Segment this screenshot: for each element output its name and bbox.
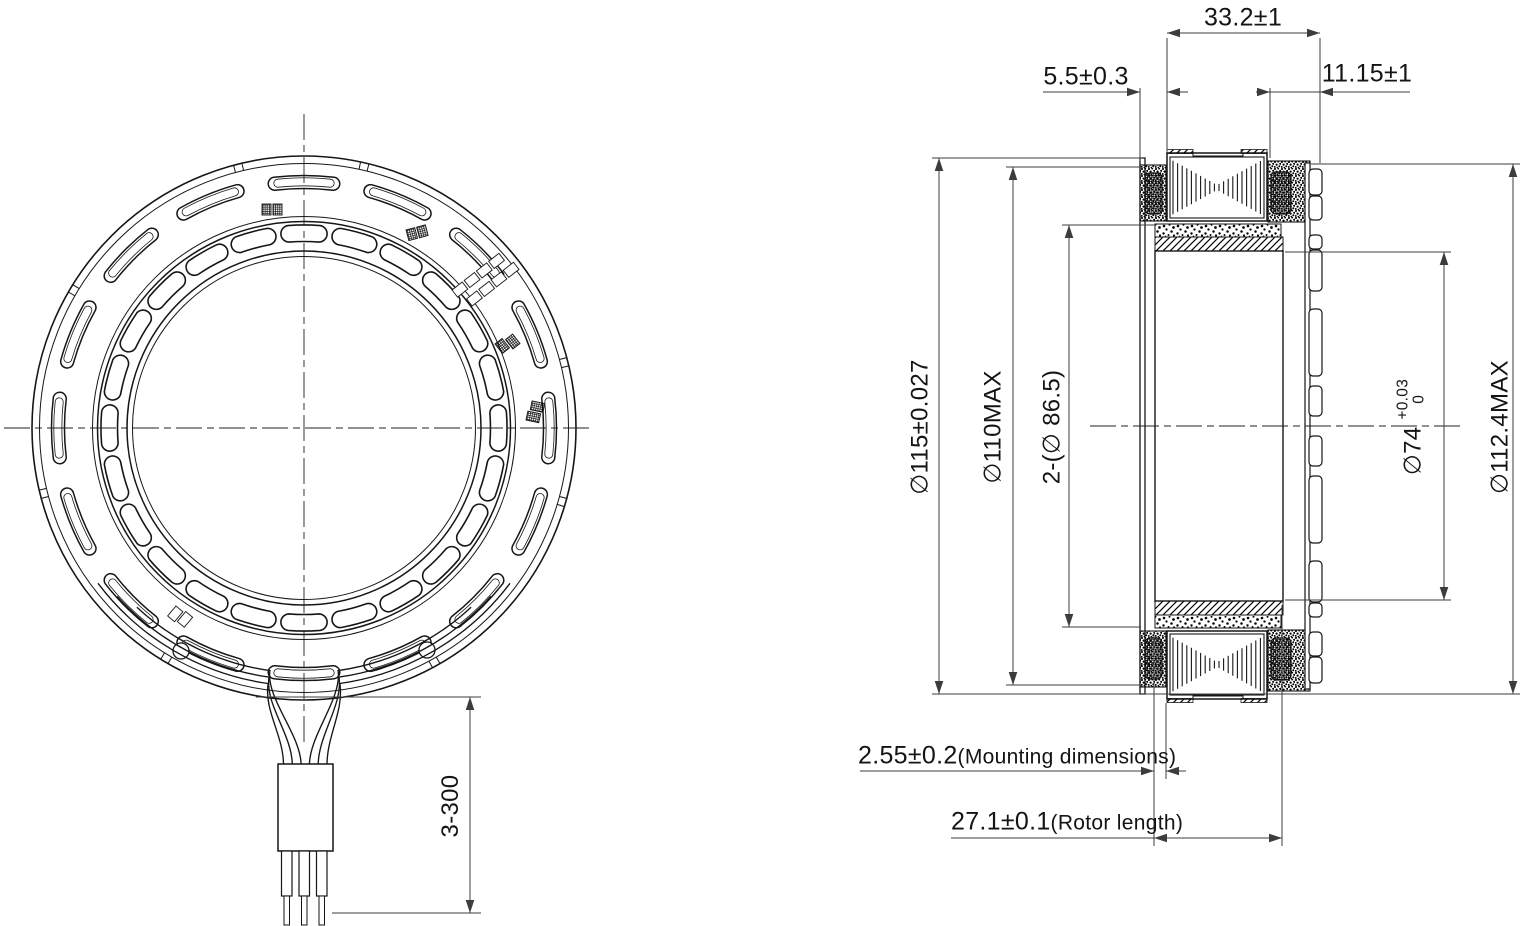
dim-bore-tol-lower: 0	[1412, 395, 1428, 404]
dim-stator-width-label: 33.2±1	[1204, 4, 1282, 33]
dim-pcb-max-diameter-label: ∅112.4MAX	[1486, 360, 1515, 494]
dim-magnet-diameter-label: 2-(∅ 86.5)	[1038, 370, 1067, 485]
front-view	[32, 156, 576, 925]
dim-rotor-length-label: 27.1±0.1(Rotor length)	[951, 808, 1183, 837]
dim-pcb-offset-label: 11.15±1	[1322, 60, 1412, 89]
dim-mounting-label: 2.55±0.2(Mounting dimensions)	[858, 742, 1176, 771]
dim-bore-tol-upper: +0.03	[1396, 379, 1412, 420]
dim-lead-wire-length-label: 3-300	[437, 775, 465, 838]
dim-outer-diameter-label: ∅115±0.027	[906, 359, 935, 494]
dim-bore-tolerance: +0.030	[1396, 379, 1429, 420]
pcb-component	[526, 400, 545, 423]
drawing-line-art	[0, 0, 1524, 926]
dim-stator-max-diameter-label: ∅110MAX	[979, 370, 1008, 483]
dim-rotor-length-value: 27.1±0.1	[951, 808, 1051, 836]
pcb-component	[406, 225, 428, 241]
dim-mounting-value: 2.55±0.2	[858, 742, 958, 770]
dim-bore-diameter-label: ∅74+0.030	[1398, 379, 1431, 475]
connector-block	[278, 764, 333, 925]
dim-bore-value: ∅74	[1399, 427, 1426, 476]
pcb-component	[495, 332, 520, 356]
dim-mounting-note: (Mounting dimensions)	[958, 746, 1177, 769]
dim-flange-offset-label: 5.5±0.3	[1043, 63, 1128, 92]
engineering-drawing-canvas: 33.2±1 5.5±0.3 11.15±1 ∅115±0.027 ∅110MA…	[0, 0, 1524, 926]
dim-rotor-length-note: (Rotor length)	[1051, 812, 1184, 835]
pcb-component	[262, 204, 282, 215]
pcb-component	[168, 604, 193, 628]
